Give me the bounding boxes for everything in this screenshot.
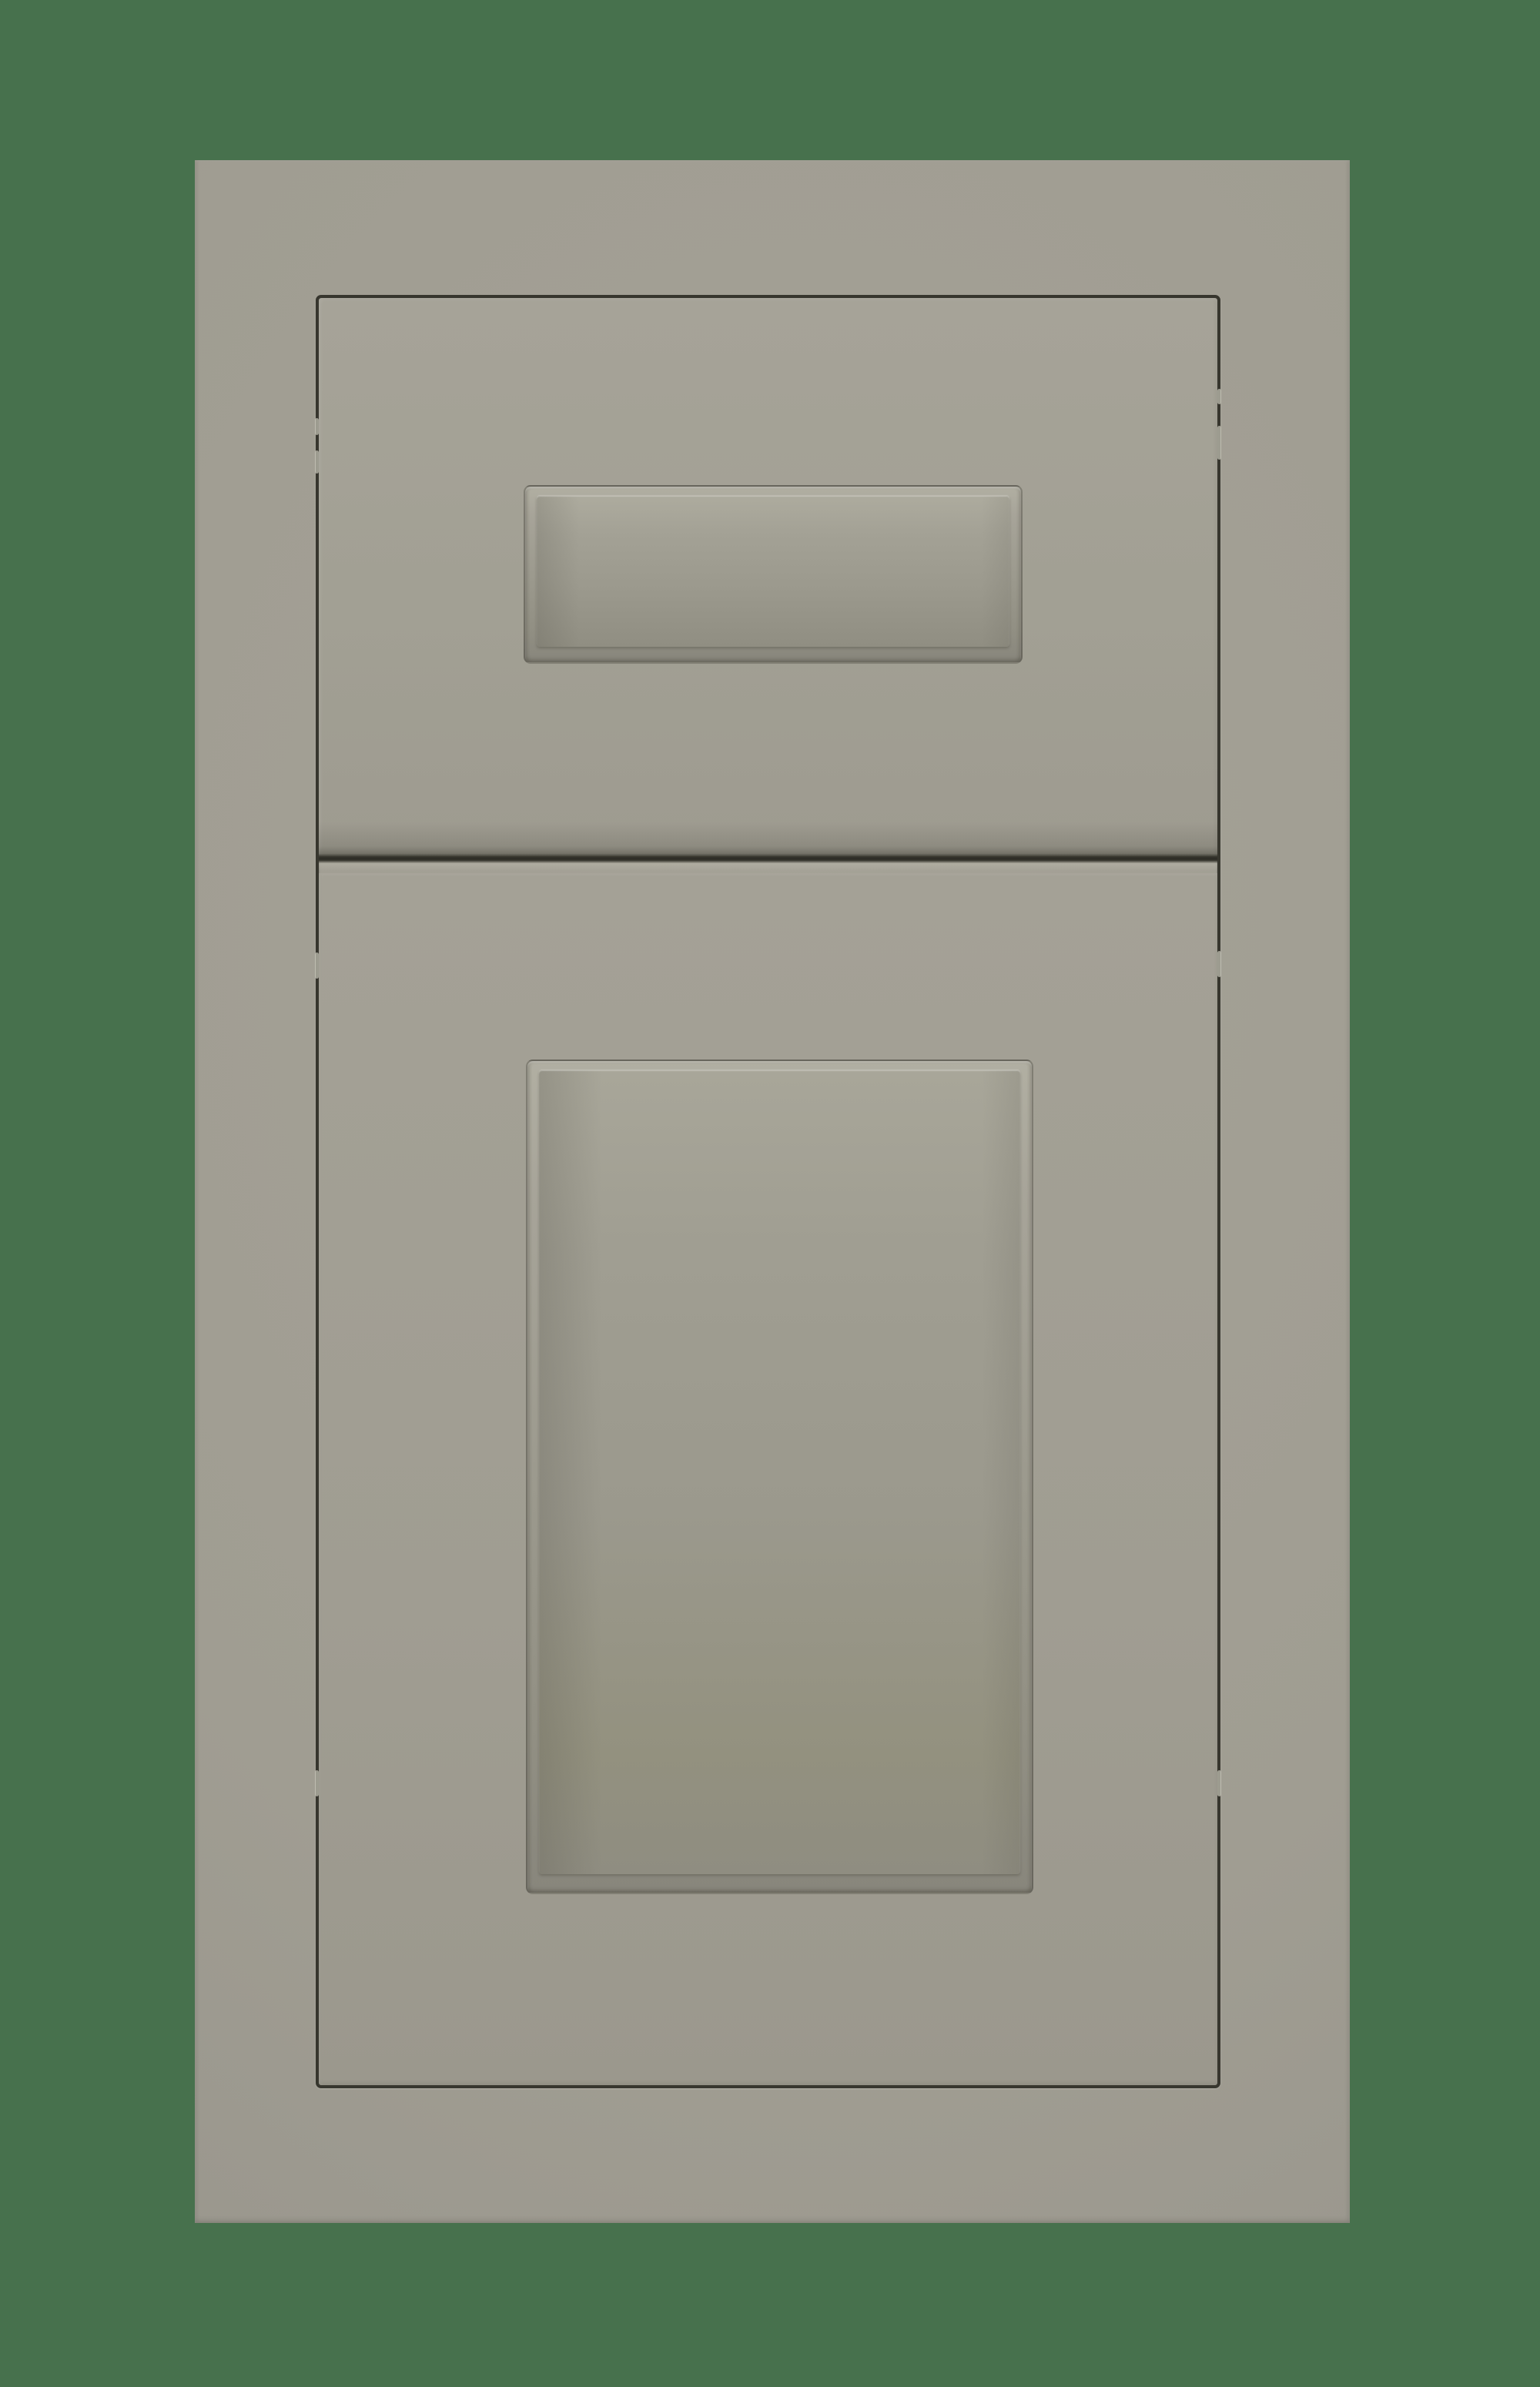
hinge-glint: [315, 418, 319, 435]
door-center-panel: [539, 1070, 1020, 1874]
drawer-center-panel: [537, 496, 1009, 647]
hinge-glint: [1217, 389, 1221, 404]
hinge-glint: [1217, 951, 1221, 977]
door-front: [319, 873, 1217, 2085]
drawer-front: [319, 298, 1217, 855]
drawer-recess: [524, 485, 1023, 664]
cabinet-sample: [195, 160, 1350, 2223]
hinge-glint: [315, 450, 319, 474]
hinge-glint: [315, 952, 319, 979]
reveal-gap-outline: [316, 295, 1220, 2088]
hinge-glint: [315, 1770, 319, 1796]
door-recess: [526, 1060, 1033, 1894]
hinge-glint: [1217, 1770, 1221, 1796]
hinge-glint: [1217, 426, 1221, 460]
drawer-door-gap: [319, 822, 1217, 883]
backdrop: { "scene": { "description": "Studio prod…: [0, 0, 1540, 2387]
